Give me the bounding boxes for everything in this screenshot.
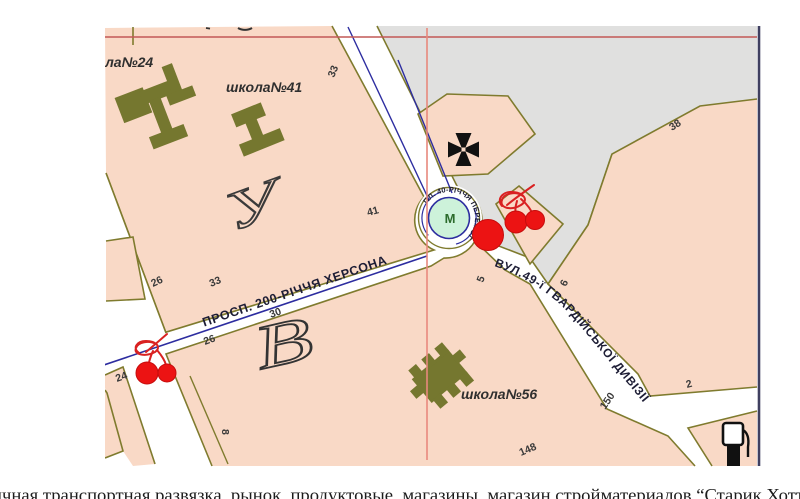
- svg-text:М: М: [445, 211, 456, 226]
- svg-text:школа№41: школа№41: [226, 79, 302, 95]
- svg-text:ичная транспортная развязка, р: ичная транспортная развязка, рынок, прод…: [0, 485, 800, 499]
- svg-text:школа№24: школа№24: [77, 54, 153, 70]
- svg-text:8: 8: [219, 429, 231, 435]
- svg-text:школа№56: школа№56: [461, 386, 537, 402]
